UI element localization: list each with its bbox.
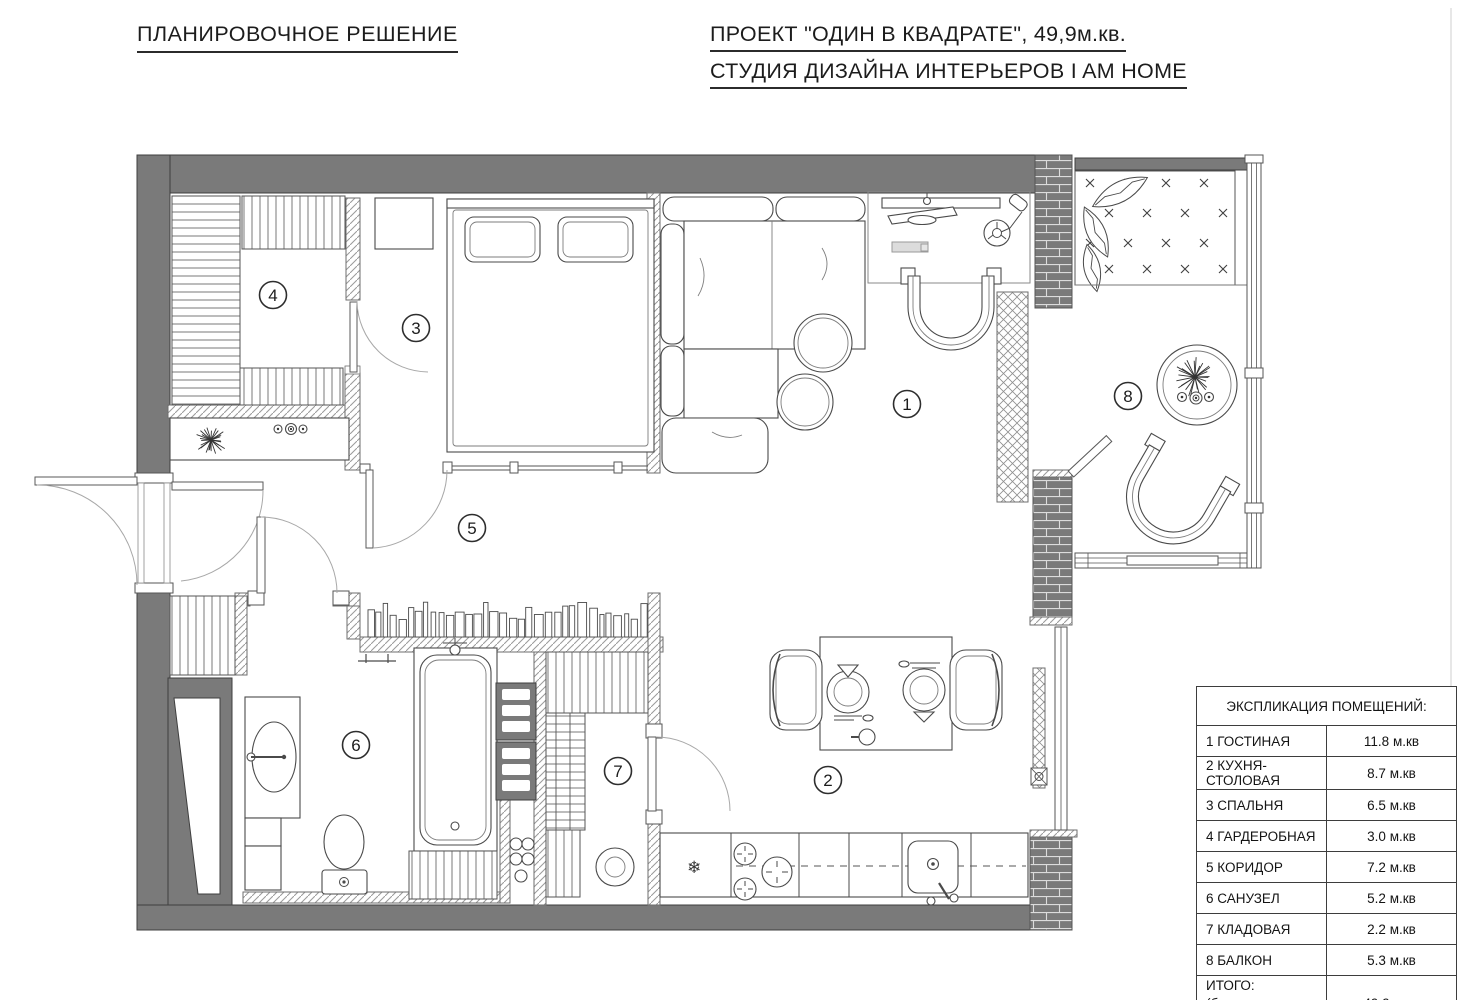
room-marker-1: 1 [894,391,921,418]
room-marker-5: 5 [459,515,486,542]
wardrobe-rack [172,196,240,405]
legend-row: 5 КОРИДОР7.2 м.кв [1197,852,1457,883]
room-marker-7: 7 [605,758,632,785]
toilet [322,815,367,894]
room-marker-8: 8 [1115,383,1142,410]
room-marker-6: 6 [343,732,370,759]
dining-chair [770,650,822,730]
washbasin [245,697,300,890]
glazing-east [1055,627,1067,830]
vent-shaft [997,292,1028,502]
storage-ladder [546,713,585,830]
storage-door [646,724,730,824]
hanging-chair [901,268,1001,350]
wardrobe-room [172,196,345,405]
room-marker-2: 2 [815,767,842,794]
pillow [465,217,540,262]
legend-total-label: ИТОГО:(без учета перегородок) [1197,976,1327,1000]
legend-row: 4 ГАРДЕРОБНАЯ3.0 м.кв [1197,821,1457,852]
svg-text:4: 4 [268,286,277,305]
living-room [661,192,1030,473]
bookshelf-wall [360,637,663,652]
bathtub [414,638,497,851]
legend-table-grid: ЭКСПЛИКАЦИЯ ПОМЕЩЕНИЙ:1 ГОСТИНАЯ11.8 м.к… [1196,686,1457,1000]
room-marker-4: 4 [260,282,287,309]
desk-tv-zone [868,192,1030,283]
towel-ladder [496,683,536,800]
bath-step [409,851,497,899]
legend-row: 6 САНУЗЕЛ5.2 м.кв [1197,883,1457,914]
washing-machine [596,848,634,886]
wall-clock [984,220,1010,246]
bedroom-cabinet [375,198,433,249]
legend-room-label-7: 7 КЛАДОВАЯ [1197,914,1327,945]
storage-room [546,652,648,897]
legend-room-area-4: 3.0 м.кв [1327,821,1457,852]
lounge-mat [1075,169,1247,294]
svg-text:7: 7 [613,762,622,781]
brick-wall [1035,155,1072,308]
dining-chair [950,650,1002,730]
svg-text:1: 1 [902,395,911,414]
legend-room-label-1: 1 ГОСТИНАЯ [1197,726,1327,757]
legend-room-area-1: 11.8 м.кв [1327,726,1457,757]
legend-room-label-8: 8 БАЛКОН [1197,945,1327,976]
legend-table: ЭКСПЛИКАЦИЯ ПОМЕЩЕНИЙ:1 ГОСТИНАЯ11.8 м.к… [1196,686,1457,1000]
vent-symbol [1031,768,1047,785]
entrance-door [35,473,263,593]
legend-room-label-4: 4 ГАРДЕРОБНАЯ [1197,821,1327,852]
floor-plan-sheet: ПЛАНИРОВОЧНОЕ РЕШЕНИЕ ПРОЕКТ "ОДИН В КВА… [0,0,1465,1000]
pipe-risers [510,838,534,882]
tv-console [882,198,1000,208]
brick-wall [1030,837,1072,930]
legend-total-row: ИТОГО:(без учета перегородок)49.9 м.кв [1197,976,1457,1000]
kitchen-dining: ❄ [660,637,1028,905]
svg-text:5: 5 [467,519,476,538]
hall-closet [170,596,235,675]
glass-partition [360,462,648,473]
legend-room-area-2: 8.7 м.кв [1327,757,1457,790]
legend-room-label-2: 2 КУХНЯ-СТОЛОВАЯ [1197,757,1327,790]
legend-room-area-6: 5.2 м.кв [1327,883,1457,914]
svg-text:3: 3 [411,319,420,338]
svg-text:2: 2 [823,771,832,790]
wardrobe-shelves [240,368,343,405]
hall-console [170,418,349,460]
legend-row: 8 БАЛКОН5.3 м.кв [1197,945,1457,976]
balcony-table [1157,345,1237,425]
balcony [1068,155,1263,568]
kitchen-counter: ❄ [660,833,1028,905]
balcony-armchair [1106,433,1240,563]
legend-room-area-3: 6.5 м.кв [1327,790,1457,821]
legend-row: 3 СПАЛЬНЯ6.5 м.кв [1197,790,1457,821]
wall-lamp [1008,193,1029,213]
dining-table [820,637,952,750]
pillow [558,217,633,262]
svg-text:8: 8 [1123,387,1132,406]
svg-text:6: 6 [351,736,360,755]
legend-row: 7 КЛАДОВАЯ2.2 м.кв [1197,914,1457,945]
fridge-icon: ❄ [687,858,701,877]
legend-total-area: 49.9 м.кв [1327,976,1457,1000]
storage-shelves [546,652,648,713]
legend-room-label-3: 3 СПАЛЬНЯ [1197,790,1327,821]
legend-room-label-6: 6 САНУЗЕЛ [1197,883,1327,914]
balcony-door [1068,436,1111,477]
legend-row: 2 КУХНЯ-СТОЛОВАЯ8.7 м.кв [1197,757,1457,790]
bedroom-door [366,470,447,548]
legend-room-area-5: 7.2 м.кв [1327,852,1457,883]
legend-title: ЭКСПЛИКАЦИЯ ПОМЕЩЕНИЙ: [1197,687,1457,726]
legend-room-area-8: 5.3 м.кв [1327,945,1457,976]
legend-room-label-5: 5 КОРИДОР [1197,852,1327,883]
bathroom-door [248,517,349,605]
legend-row: 1 ГОСТИНАЯ11.8 м.кв [1197,726,1457,757]
legend-room-area-7: 2.2 м.кв [1327,914,1457,945]
wardrobe-shelves [242,196,345,249]
room-marker-3: 3 [403,315,430,342]
bed [447,199,654,452]
brick-wall [1033,477,1072,620]
